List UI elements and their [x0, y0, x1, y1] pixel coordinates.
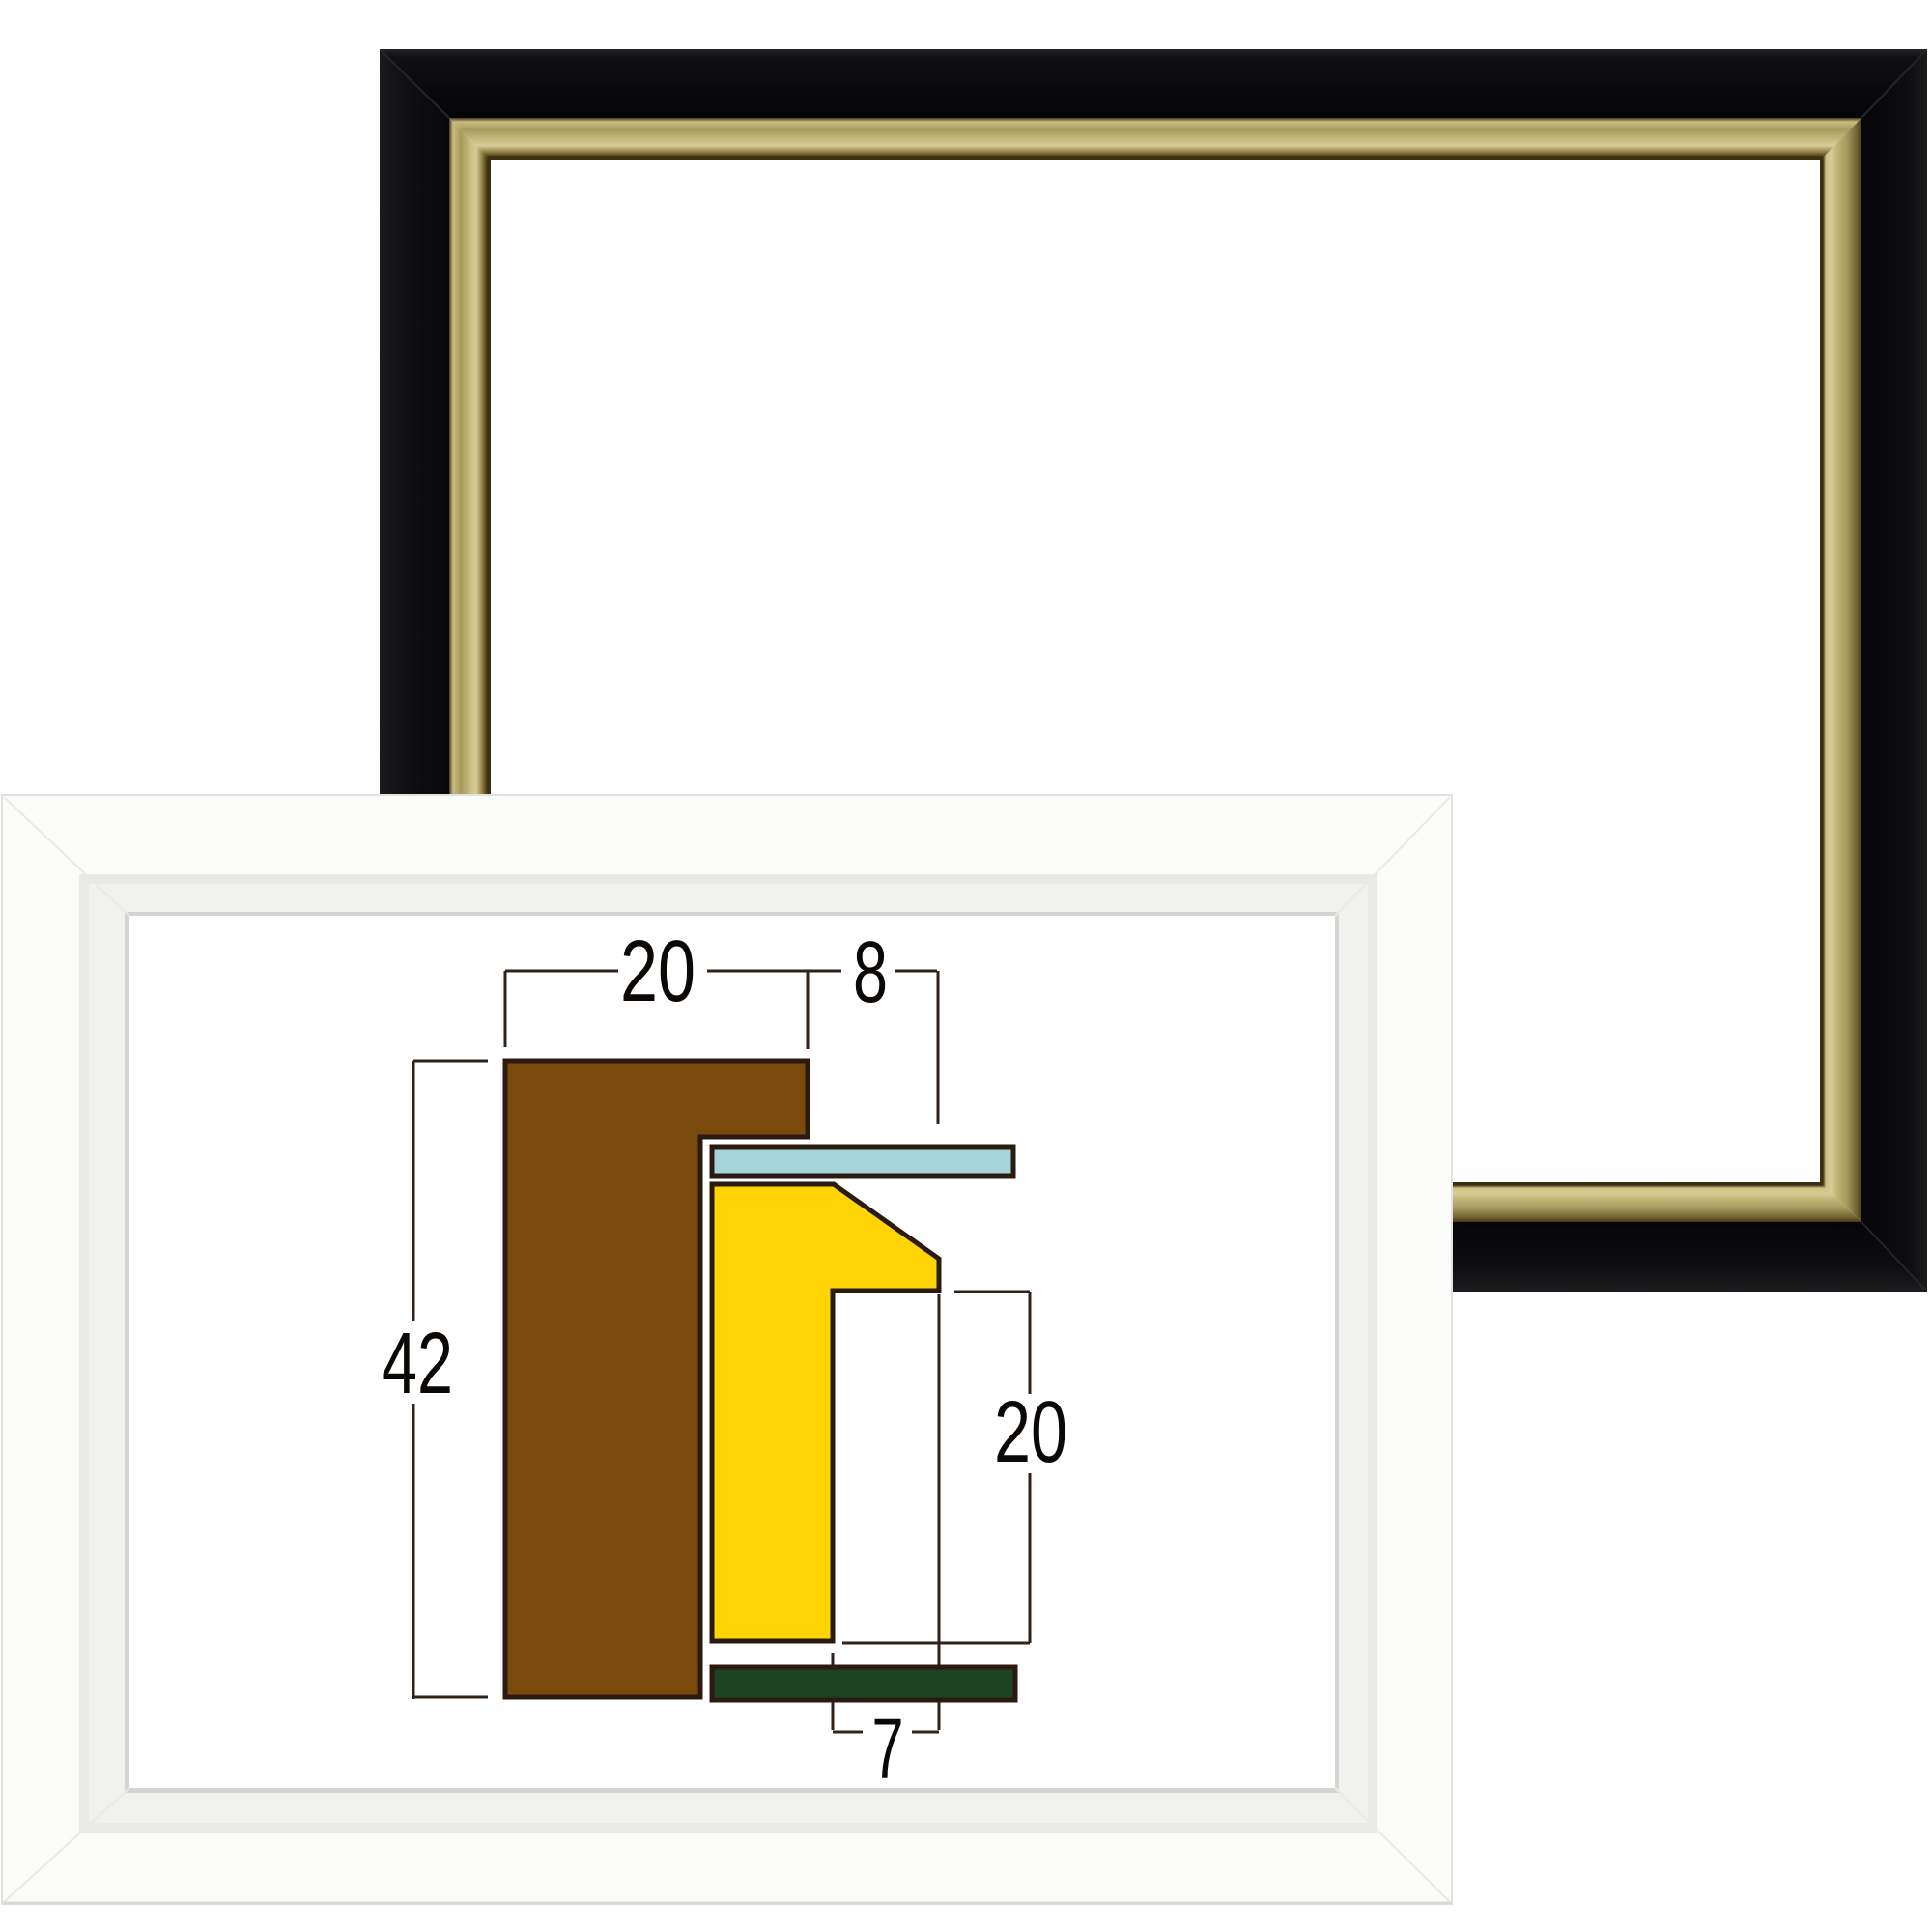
- svg-text:42: 42: [382, 1316, 453, 1412]
- svg-text:20: 20: [620, 923, 696, 1020]
- svg-text:8: 8: [853, 924, 888, 1021]
- svg-text:7: 7: [872, 1701, 904, 1798]
- svg-text:20: 20: [994, 1384, 1067, 1481]
